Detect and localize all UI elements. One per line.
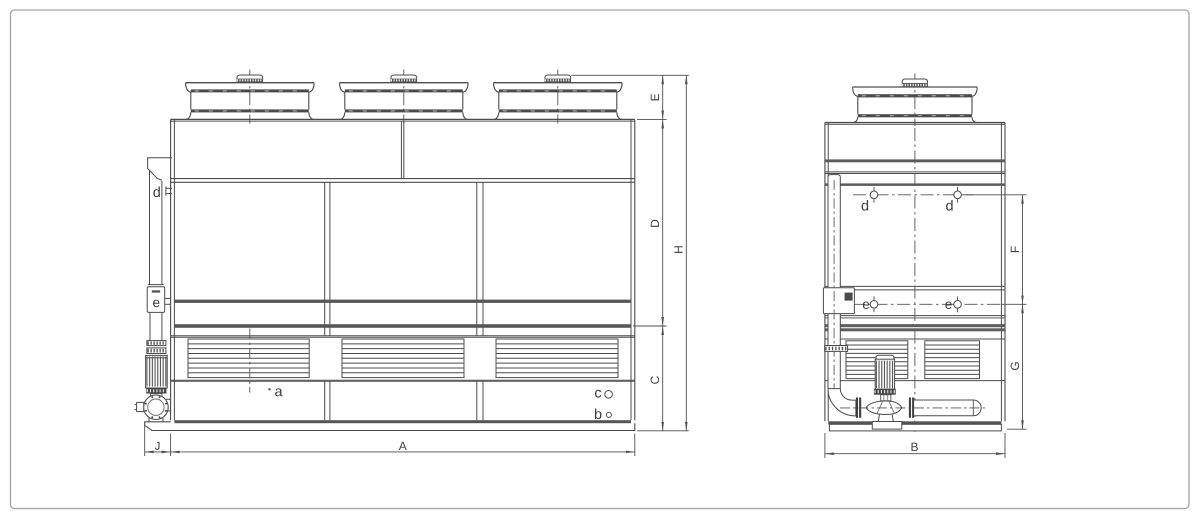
svg-text:D: D [648, 219, 662, 228]
svg-text:H: H [672, 245, 686, 254]
svg-text:G: G [1008, 361, 1022, 370]
svg-text:e: e [152, 295, 160, 310]
svg-text:c: c [594, 385, 601, 401]
svg-text:A: A [399, 439, 407, 453]
svg-text:d: d [945, 198, 953, 214]
svg-text:B: B [910, 440, 918, 454]
svg-text:a: a [274, 384, 283, 400]
svg-text:b: b [594, 407, 602, 423]
svg-text:d: d [861, 198, 869, 214]
svg-text:J: J [155, 441, 161, 453]
svg-text:C: C [648, 375, 662, 384]
svg-text:e: e [945, 297, 953, 312]
svg-text:e: e [862, 297, 870, 312]
svg-text:F: F [1008, 246, 1022, 253]
svg-text:E: E [648, 93, 662, 101]
svg-text:d: d [153, 185, 161, 201]
